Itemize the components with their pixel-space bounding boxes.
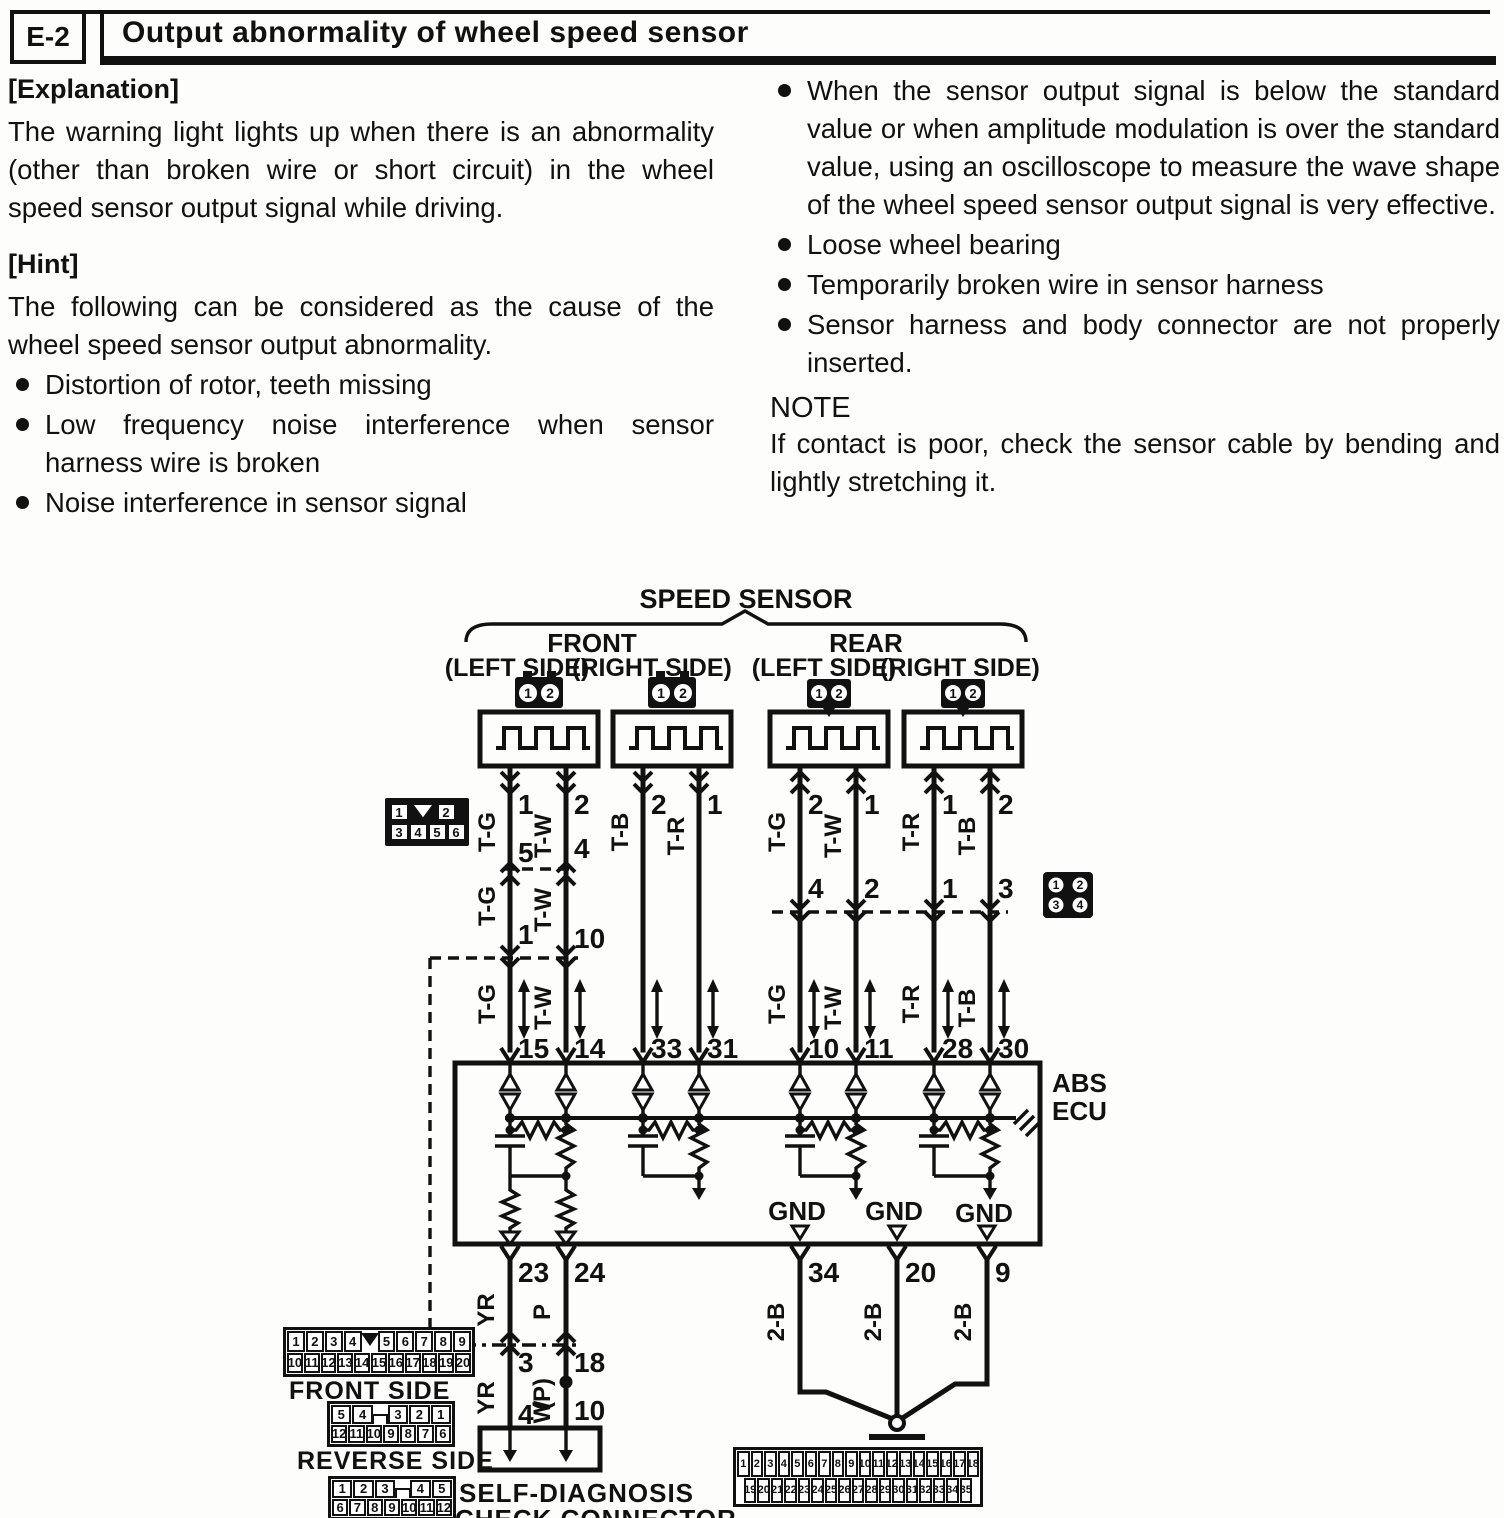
wire-color: (P) (529, 1378, 556, 1410)
connector-pin: 2 (353, 1480, 373, 1498)
wire-color: T-G (474, 984, 501, 1024)
ecu-pin-forks-bottom (501, 1246, 996, 1260)
connector-pin: 13 (337, 1353, 353, 1374)
connector-pin: 20 (757, 1478, 769, 1504)
pin-number: 4 (574, 833, 590, 864)
sensor-plug-icon: 1 2 (941, 679, 985, 717)
side-label: (RIGHT SIDE) (572, 654, 732, 682)
connector-pin: 5 (378, 1331, 396, 1352)
abs-ecu-box (455, 1063, 1040, 1244)
connector-pin: 16 (940, 1451, 953, 1477)
wire-color: T-W (530, 888, 557, 932)
header-divider (100, 10, 104, 60)
pin-number: 1 (518, 789, 534, 820)
plug-pin: 1 (657, 685, 665, 701)
plug-pin: 1 (524, 685, 532, 701)
connector-pin: 11 (348, 1425, 364, 1444)
wire-color: 2-B (763, 1303, 790, 1342)
connector-pin: 20 (455, 1353, 471, 1374)
connector-pin: 17 (953, 1451, 966, 1477)
section-code: E-2 (10, 10, 86, 64)
pin: 4 (414, 825, 422, 840)
gnd-label: GND (865, 1196, 923, 1226)
note-heading: NOTE (770, 392, 1500, 425)
pin-number: 1 (942, 789, 958, 820)
abs-ecu-connector-35pin: 1234567891011121314151617181920212223242… (733, 1447, 983, 1507)
connector-pin: 11 (418, 1499, 434, 1517)
connector-pin: 10 (366, 1425, 382, 1444)
bullet-icon (778, 84, 791, 97)
connector-pin: 6 (332, 1499, 348, 1517)
connector-pin: 5 (791, 1451, 804, 1477)
wire-color: P (529, 1304, 556, 1320)
pin: 5 (433, 825, 440, 840)
front-side-connector: 1234567891011121314151617181920 (283, 1327, 475, 1377)
bullet-text: Noise interference in sensor signal (45, 484, 714, 522)
check-connector-12pin: 123456789101112 (328, 1476, 456, 1518)
inline-4pin-connector: 1 2 3 4 (1043, 872, 1093, 918)
ecu-pin-number: 33 (651, 1033, 682, 1064)
connector-pin: 3 (764, 1451, 777, 1477)
connector-pin: 2 (409, 1405, 429, 1424)
hint-intro: The following can be considered as the c… (8, 288, 714, 364)
pin-number: 4 (808, 873, 824, 904)
pin: 3 (395, 825, 402, 840)
front-label: FRONT (547, 628, 637, 658)
branch-rear-left: 2 1 4 2 T-G T-W T-G T-W 10 11 (764, 766, 1008, 1064)
connector-pin: 1 (431, 1405, 451, 1424)
bullet-text: When the sensor output signal is below t… (807, 72, 1500, 224)
connector-pin: 12 (436, 1499, 452, 1517)
list-item: Loose wheel bearing (770, 226, 1500, 264)
connector-pin: 1 (332, 1480, 352, 1498)
brace (466, 611, 1026, 642)
connector-pin: 3 (375, 1480, 395, 1498)
connector-pin: 9 (384, 1499, 400, 1517)
list-item: Sensor harness and body connector are no… (770, 306, 1500, 382)
abs-ecu-label: ECU (1052, 1096, 1107, 1126)
wire-color: T-B (607, 813, 634, 852)
connector-notch (396, 1480, 409, 1498)
connector-pin: 4 (344, 1331, 362, 1352)
header-bottom-rule (100, 56, 1496, 65)
connector-pin: 22 (784, 1478, 796, 1504)
reverse-side-connector: 543211211109876 (327, 1401, 455, 1447)
abs-ecu-label: ABS (1052, 1068, 1107, 1098)
pin: 6 (452, 825, 459, 840)
connector-pin: 10 (287, 1353, 303, 1374)
connector-notch (374, 1405, 387, 1424)
wire-color: T-R (898, 985, 925, 1024)
connector-pin: 4 (352, 1405, 372, 1424)
wire-color: W (529, 1400, 556, 1423)
connector-pin: 27 (852, 1478, 864, 1504)
list-item: When the sensor output signal is below t… (770, 72, 1500, 224)
connector-pin: 14 (354, 1353, 370, 1374)
bullet-text: Distortion of rotor, teeth missing (45, 366, 714, 404)
connector-pin: 3 (325, 1331, 343, 1352)
connector-pin: 11 (872, 1451, 885, 1477)
ecu-pin-number: 9 (995, 1257, 1011, 1288)
ecu-pin-number: 34 (808, 1257, 840, 1288)
wire-color: T-G (474, 812, 501, 852)
wire-color: T-G (764, 984, 791, 1024)
connector-pin: 32 (919, 1478, 931, 1504)
ecu-pin-number: 10 (808, 1033, 839, 1064)
wire-color: 2-B (860, 1303, 887, 1342)
reverse-side-label: REVERSE SIDE (297, 1447, 494, 1476)
branch-front-right: 2 1 T-B T-R 33 31 (607, 766, 738, 1064)
hint-heading: [Hint] (8, 249, 714, 280)
connector-pin: 6 (396, 1331, 414, 1352)
pin-number: 1 (942, 873, 958, 904)
connector-pin: 9 (383, 1425, 399, 1444)
connector-pin: 25 (825, 1478, 837, 1504)
note-body: If contact is poor, check the sensor cab… (770, 425, 1500, 501)
connector-pin: 15 (371, 1353, 387, 1374)
page-title: Output abnormality of wheel speed sensor (122, 16, 749, 50)
wire-color: T-B (954, 817, 981, 856)
ecu-pin-number: 11 (864, 1033, 894, 1064)
connector-pin: 28 (865, 1478, 877, 1504)
connector-pin: 10 (401, 1499, 417, 1517)
wire-color: T-W (820, 986, 847, 1030)
gnd-label: GND (955, 1198, 1013, 1228)
connector-pin: 34 (946, 1478, 958, 1504)
ecu-pin-forks-top (501, 1048, 999, 1062)
connector-pin: 9 (453, 1331, 471, 1352)
bullet-icon (778, 278, 791, 291)
connector-pin: 35 (960, 1478, 972, 1504)
list-item: Low frequency noise interference when se… (8, 406, 714, 482)
pin: 2 (442, 805, 449, 820)
connector-pin: 2 (751, 1451, 764, 1477)
ecu-pin-number: 24 (574, 1257, 606, 1288)
wire-color: T-G (474, 886, 501, 926)
connector-pin: 8 (367, 1499, 383, 1517)
bullet-icon (16, 378, 29, 391)
continuity-arrows (518, 979, 1010, 1039)
diagram-title: SPEED SENSOR (639, 584, 852, 614)
plug-pin: 2 (679, 685, 687, 701)
inline-6pin-connector: 1 2 3 4 5 6 (385, 798, 469, 846)
connector-pin: 12 (886, 1451, 899, 1477)
gnd-label: GND (768, 1196, 826, 1226)
ecu-pin-number: 28 (942, 1033, 973, 1064)
text-columns: [Explanation] The warning light lights u… (8, 70, 1500, 524)
wire-color: T-W (530, 814, 557, 858)
branch-front-left: 1 2 5 4 1 10 T-G T-W T-G T-W T-G T-W 15 … (430, 766, 606, 1064)
pin-number: 3 (998, 873, 1014, 904)
manual-page: E-2 Output abnormality of wheel speed se… (0, 0, 1504, 1518)
sensor-plug-icon: 1 2 (807, 679, 851, 717)
connector-pin: 26 (838, 1478, 850, 1504)
plug-pin: 2 (969, 686, 976, 701)
connector-pin: 3 (388, 1405, 408, 1424)
wire-color: T-R (898, 813, 925, 852)
pin-number: 2 (864, 873, 880, 904)
ecu-pin-number: 31 (707, 1033, 738, 1064)
connector-pin: 13 (899, 1451, 912, 1477)
pin: 1 (1053, 878, 1060, 892)
connector-pin: 1 (287, 1331, 305, 1352)
connector-pin: 15 (926, 1451, 939, 1477)
pin-number: 2 (574, 789, 590, 820)
bullet-icon (16, 496, 29, 509)
branch-rear-right: 1 2 1 3 T-R T-B T-R T-B 28 30 (898, 766, 1029, 1064)
bullet-text: Low frequency noise interference when se… (45, 406, 714, 482)
connector-notch (363, 1331, 377, 1352)
wire-color: T-W (820, 814, 847, 858)
connector-pin: 4 (778, 1451, 791, 1477)
explanation-heading: [Explanation] (8, 74, 714, 105)
list-item: Temporarily broken wire in sensor harnes… (770, 266, 1500, 304)
ecu-pin-number: 15 (518, 1033, 549, 1064)
pin: 2 (1077, 878, 1084, 892)
pin-number: 2 (808, 789, 824, 820)
bullet-text: Loose wheel bearing (807, 226, 1500, 264)
connector-pin: 8 (832, 1451, 845, 1477)
pin-number: 1 (707, 789, 723, 820)
pin-number: 4 (518, 1399, 534, 1430)
wire-color: T-G (764, 812, 791, 852)
connector-pin: 19 (744, 1478, 756, 1504)
connector-pin: 1 (737, 1451, 750, 1477)
rear-label: REAR (829, 628, 903, 658)
connector-pin: 5 (331, 1405, 351, 1424)
connector-pin: 24 (811, 1478, 823, 1504)
ground-node (890, 1416, 904, 1430)
pin-number: 18 (574, 1347, 605, 1378)
plug-pin: 1 (815, 686, 822, 701)
wire-color: T-B (954, 989, 981, 1028)
pin-number: 2 (651, 789, 667, 820)
explanation-body: The warning light lights up when there i… (8, 113, 714, 227)
connector-pin: 19 (438, 1353, 454, 1374)
pin: 1 (395, 805, 402, 820)
list-item: Distortion of rotor, teeth missing (8, 366, 714, 404)
ecu-pin-number: 23 (518, 1257, 549, 1288)
connector-pin: 12 (331, 1425, 347, 1444)
pin-number: 1 (518, 919, 534, 950)
connector-pin: 5 (432, 1480, 452, 1498)
bullet-text: Sensor harness and body connector are no… (807, 306, 1500, 382)
connector-pin: 30 (892, 1478, 904, 1504)
pin: 3 (1053, 898, 1060, 912)
ecu-pin-number: 20 (905, 1257, 936, 1288)
pin-number: 2 (998, 789, 1014, 820)
wire-color: 2-B (950, 1303, 977, 1342)
pin-number: 10 (574, 923, 605, 954)
bullet-text: Temporarily broken wire in sensor harnes… (807, 266, 1500, 304)
connector-pin: 31 (906, 1478, 918, 1504)
side-label: (LEFT SIDE) (445, 654, 589, 682)
connector-pin: 7 (818, 1451, 831, 1477)
connector-pin: 7 (349, 1499, 365, 1517)
self-diagnosis-label: CHECK CONNECTOR (455, 1504, 737, 1518)
plug-pin: 1 (949, 686, 956, 701)
connector-pin: 6 (805, 1451, 818, 1477)
wire-color: T-R (663, 817, 690, 856)
right-column: When the sensor output signal is below t… (770, 70, 1500, 524)
wire-color: YR (473, 1293, 500, 1326)
side-label: (RIGHT SIDE) (880, 654, 1040, 682)
connector-pin: 16 (388, 1353, 404, 1374)
sensor-plug-icon: 1 2 (648, 671, 696, 708)
connector-pin: 23 (798, 1478, 810, 1504)
bullet-icon (16, 418, 29, 431)
connector-pin: 21 (771, 1478, 783, 1504)
ecu-pin-number: 30 (998, 1033, 1029, 1064)
connector-pin: 7 (417, 1425, 433, 1444)
pin-number: 1 (864, 789, 880, 820)
wire-color: YR (473, 1381, 500, 1414)
list-item: Noise interference in sensor signal (8, 484, 714, 522)
connector-pin: 18 (422, 1353, 438, 1374)
connector-pin: 4 (410, 1480, 430, 1498)
connector-pin: 2 (306, 1331, 324, 1352)
connector-pin: 8 (434, 1331, 452, 1352)
connector-pin: 9 (845, 1451, 858, 1477)
pin-number: 5 (518, 837, 534, 868)
sensor-plug-icon: 1 2 (515, 671, 563, 708)
bullet-icon (778, 238, 791, 251)
connector-pin: 18 (967, 1451, 980, 1477)
self-diagnosis-box (480, 1428, 600, 1470)
plug-pin: 2 (835, 686, 842, 701)
connector-pin: 17 (405, 1353, 421, 1374)
plug-pin: 2 (546, 685, 554, 701)
connector-pin: 12 (321, 1353, 337, 1374)
wire-color: T-W (530, 986, 557, 1030)
connector-pin: 33 (933, 1478, 945, 1504)
pin-number: 10 (574, 1395, 605, 1426)
connector-pin: 7 (415, 1331, 433, 1352)
header-top-rule (10, 10, 1490, 14)
connector-pin: 29 (879, 1478, 891, 1504)
bullet-icon (778, 318, 791, 331)
ecu-pin-number: 14 (574, 1033, 606, 1064)
pin-number: 3 (518, 1347, 534, 1378)
connector-pin: 14 (913, 1451, 926, 1477)
connector-pin: 8 (400, 1425, 416, 1444)
connector-pin: 11 (304, 1353, 320, 1374)
pin: 4 (1077, 898, 1084, 912)
speed-sensor-symbol (480, 712, 1022, 766)
ecu-internal-circuit: GND GND GND (495, 1063, 1040, 1244)
ground-wires: 2-B 2-B 2-B (763, 1260, 987, 1461)
side-label: (LEFT SIDE) (752, 654, 896, 682)
connector-pin: 6 (435, 1425, 451, 1444)
left-column: [Explanation] The warning light lights u… (8, 70, 714, 524)
connector-pin: 10 (859, 1451, 872, 1477)
